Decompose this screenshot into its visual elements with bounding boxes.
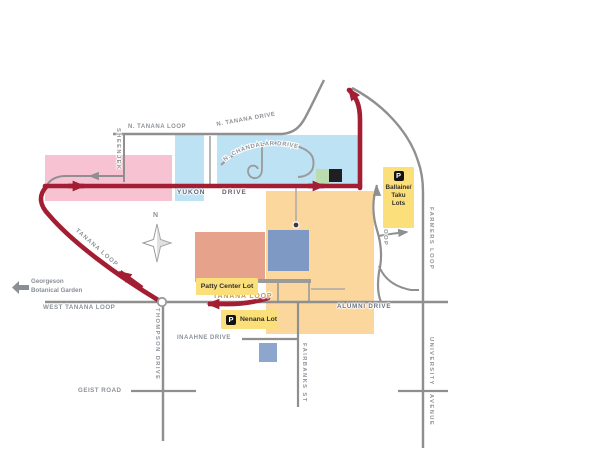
thompson-drive-label: THOMPSON DRIVE (154, 308, 160, 380)
georgeson-arrow-icon (12, 281, 30, 294)
patty-center-lot-label: Patty Center Lot (201, 283, 254, 290)
south-blue-building (259, 343, 277, 362)
ballaine-line2: Taku (386, 192, 412, 200)
west-tanana-loop-label: WEST TANANA LOOP (43, 304, 115, 311)
n-tanana-loop-label: N. TANANA LOOP (128, 124, 186, 130)
ballaine-taku-lots-box: P Ballaine/ Taku Lots (383, 167, 414, 228)
nenana-lot-label: Nenana Lot (240, 316, 277, 323)
inaahne-drive-label: INAAHNE DRIVE (177, 335, 231, 341)
university-label: UNIVERSITY (428, 337, 434, 386)
parking-icon-ballaine: P (394, 171, 404, 181)
georgeson-line2: Botanical Garden (31, 287, 82, 296)
steelblue-building (268, 230, 309, 271)
parking-icon-nenana: P (226, 315, 236, 325)
georgeson-pointer: Georgeson Botanical Garden (31, 278, 82, 295)
ballaine-line3: Lots (386, 200, 412, 208)
n-tanana-drive-road (282, 80, 324, 134)
compass-rose (143, 224, 171, 262)
junction-dot (158, 298, 166, 306)
west-ridge-pink-lot (45, 155, 172, 201)
compass-north-label: N (153, 212, 159, 219)
map-canvas: N. CHANDALAR DRIVE (0, 0, 600, 464)
dark-square (329, 169, 342, 182)
yukon-drive-word-label: DRIVE (222, 189, 247, 196)
ballaine-line1: Ballaine/ (386, 184, 412, 192)
fairbanks-st-label: FAIRBANKS ST (301, 343, 307, 403)
georgeson-line1: Georgeson (31, 278, 82, 287)
avenue-label: AVENUE (428, 394, 434, 426)
yukon-label: YUKON (177, 189, 205, 196)
farmers-loop-label: FARMERS LOOP (428, 207, 434, 270)
campus-detour-map: N. CHANDALAR DRIVE N. TANANA LOOP N. TAN… (0, 0, 600, 464)
sheenjek-label: SHEENJEK (115, 128, 121, 170)
patty-center-lot-box: Patty Center Lot (196, 278, 258, 295)
nenana-lot-box: P Nenana Lot (221, 310, 278, 329)
tanana-east-spur-lower (379, 266, 419, 290)
geist-road-label: GEIST ROAD (78, 387, 122, 394)
destination-dot (293, 222, 299, 228)
alumni-drive-label: ALUMNI DRIVE (337, 303, 391, 310)
tanana-loop-east-road (373, 185, 381, 302)
salmon-building (195, 232, 265, 282)
route-arrow-exit-north (349, 89, 354, 96)
